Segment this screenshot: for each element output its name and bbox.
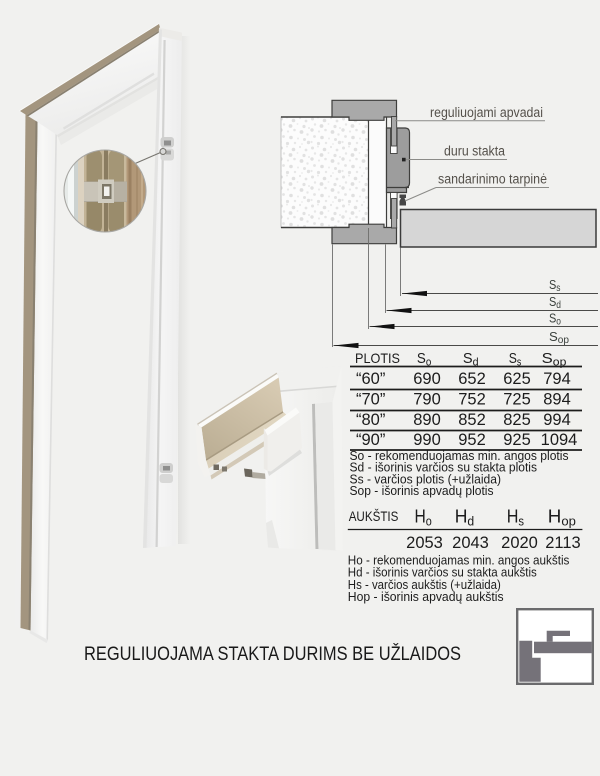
svg-text:990: 990 <box>413 431 441 449</box>
svg-text:952: 952 <box>458 431 486 449</box>
svg-text:625: 625 <box>503 370 531 388</box>
svg-text:duru stakta: duru stakta <box>444 144 505 159</box>
svg-text:852: 852 <box>458 411 486 429</box>
svg-text:“70”: “70” <box>356 391 385 409</box>
svg-text:790: 790 <box>413 391 441 409</box>
svg-text:“80”: “80” <box>356 411 385 429</box>
svg-text:894: 894 <box>543 391 571 409</box>
svg-text:1094: 1094 <box>541 431 578 449</box>
svg-text:652: 652 <box>458 370 486 388</box>
svg-text:825: 825 <box>503 411 531 429</box>
svg-text:2020: 2020 <box>501 534 538 552</box>
svg-text:752: 752 <box>458 391 486 409</box>
svg-text:PLOTIS: PLOTIS <box>355 350 400 366</box>
svg-text:725: 725 <box>503 391 531 409</box>
svg-text:925: 925 <box>503 431 531 449</box>
svg-text:690: 690 <box>413 370 441 388</box>
svg-text:“90”: “90” <box>356 431 385 449</box>
svg-text:reguliuojami apvadai: reguliuojami apvadai <box>430 105 543 120</box>
svg-text:994: 994 <box>543 411 571 429</box>
svg-text:794: 794 <box>543 370 571 388</box>
svg-text:sandarinimo tarpinė: sandarinimo tarpinė <box>438 172 547 187</box>
svg-text:2043: 2043 <box>452 534 489 552</box>
svg-text:890: 890 <box>413 411 441 429</box>
svg-text:Sop - išorinis apvadų plotis: Sop - išorinis apvadų plotis <box>350 483 494 498</box>
svg-text:REGULIUOJAMA STAKTA DURIMS BE: REGULIUOJAMA STAKTA DURIMS BE UŽLAIDOS <box>84 643 461 665</box>
svg-text:Hop - išorinis apvadų aukštis: Hop - išorinis apvadų aukštis <box>348 589 504 604</box>
svg-text:AUKŠTIS: AUKŠTIS <box>349 508 399 524</box>
svg-text:“60”: “60” <box>356 370 385 388</box>
svg-text:2113: 2113 <box>545 534 580 552</box>
svg-text:2053: 2053 <box>406 534 443 552</box>
